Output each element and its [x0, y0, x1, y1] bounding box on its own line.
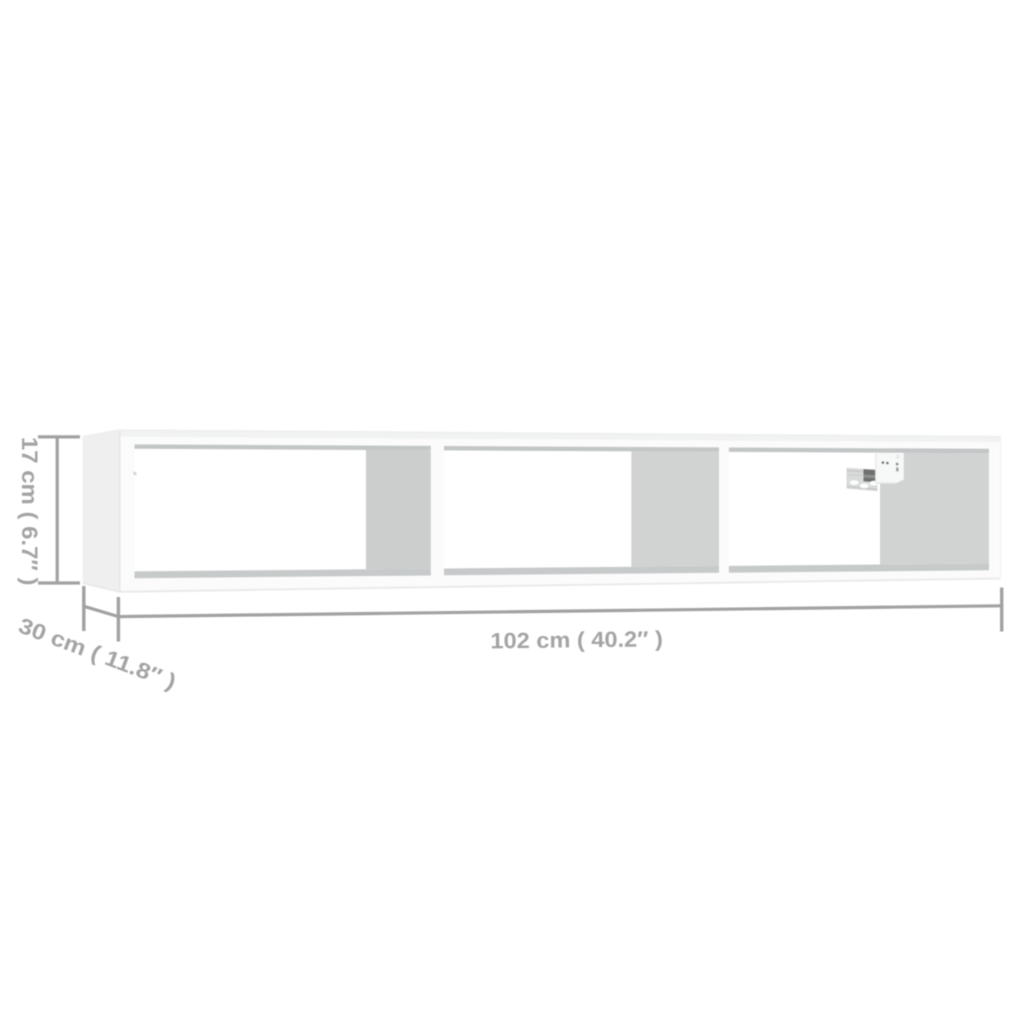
svg-text:102 cm ( 40.2″ ): 102 cm ( 40.2″ )	[490, 626, 663, 653]
svg-text:17 cm ( 6.7″ ): 17 cm ( 6.7″ )	[17, 437, 42, 586]
